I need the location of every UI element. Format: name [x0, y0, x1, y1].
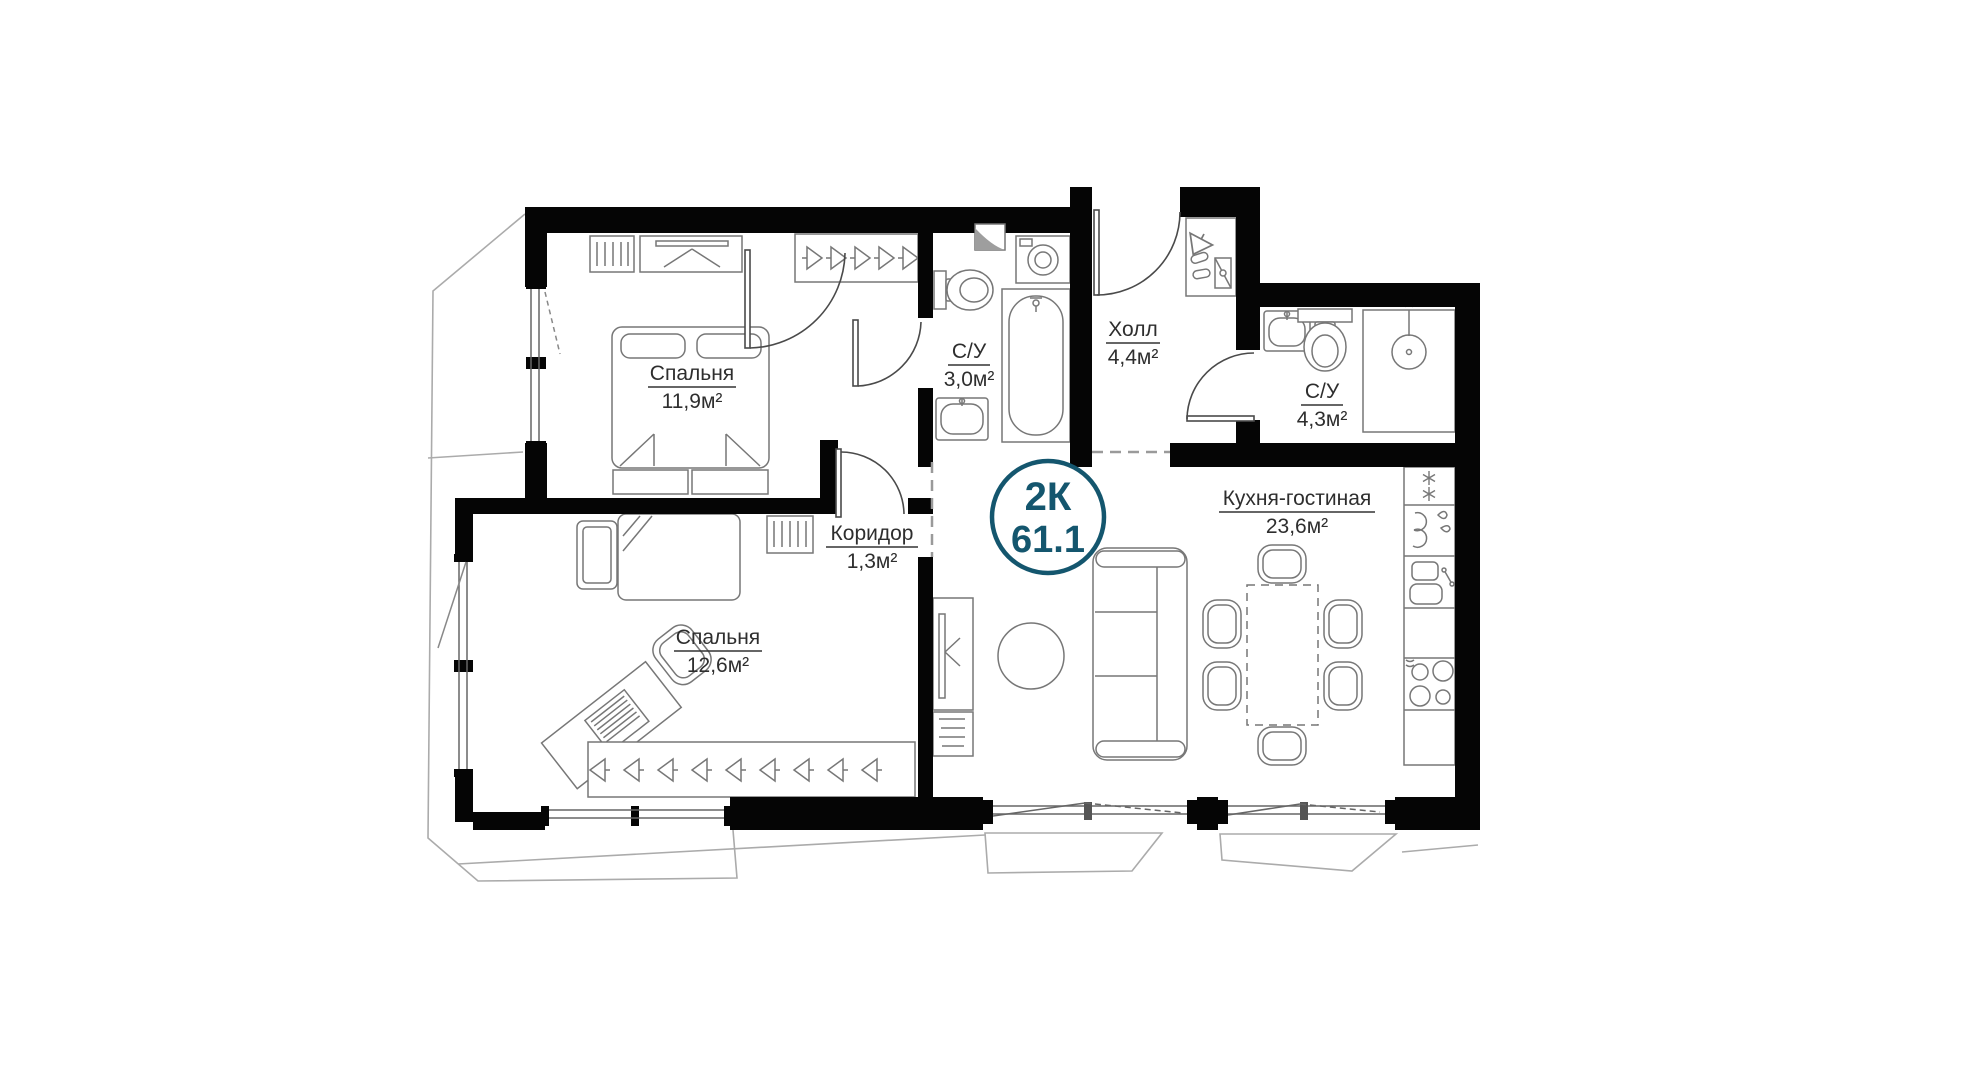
dresser-bedroom2	[767, 516, 813, 553]
nightstand-bedroom2	[577, 521, 617, 589]
dining-table-chairs	[1203, 545, 1362, 765]
bedroom1-name: Спальня	[650, 362, 734, 385]
apartment-type-badge: 2К 61.1	[992, 461, 1104, 573]
badge-type: 2К	[1025, 475, 1072, 519]
toilet-bathroom1	[934, 270, 993, 310]
bedroom2-area: 12,6м²	[687, 654, 749, 677]
dresser-tv-bedroom1	[590, 236, 742, 272]
sofa	[1093, 548, 1187, 760]
kitchen-living-area: 23,6м²	[1266, 515, 1328, 538]
washing-machine	[1016, 236, 1070, 283]
single-bed-bedroom2	[618, 514, 740, 600]
hall-name: Холл	[1108, 318, 1158, 341]
hall-area: 4,4м²	[1108, 346, 1159, 369]
sink-bathroom1	[936, 398, 988, 440]
entry-closet	[1182, 218, 1236, 296]
bedroom2-name: Спальня	[676, 626, 760, 649]
corridor-name: Коридор	[831, 522, 914, 545]
badge-area: 61.1	[1011, 519, 1085, 561]
bathroom1-name: С/У	[952, 340, 987, 363]
kitchen-living-name: Кухня-гостиная	[1223, 487, 1372, 510]
bedroom1-area: 11,9м²	[662, 390, 723, 413]
bathtub	[1002, 289, 1070, 442]
pouf	[998, 623, 1064, 689]
corridor-area: 1,3м²	[847, 550, 898, 573]
wardrobe-bedroom2	[588, 742, 915, 797]
bathroom1-area: 3,0м²	[944, 368, 995, 391]
tv-unit-living	[933, 598, 973, 756]
toilet-bathroom2	[1298, 309, 1352, 371]
shower	[1363, 294, 1455, 432]
bathroom2-area: 4,3м²	[1297, 408, 1348, 431]
ventilation-duct	[975, 224, 1005, 250]
floor-plan: Спальня 11,9м² С/У 3,0м² Холл 4,4м² С/У …	[0, 0, 1980, 1080]
kitchen-counter	[1404, 467, 1455, 765]
floor-plan-page: Спальня 11,9м² С/У 3,0м² Холл 4,4м² С/У …	[0, 0, 1980, 1080]
wardrobe-bedroom1	[795, 234, 918, 282]
bathroom2-name: С/У	[1305, 380, 1340, 403]
